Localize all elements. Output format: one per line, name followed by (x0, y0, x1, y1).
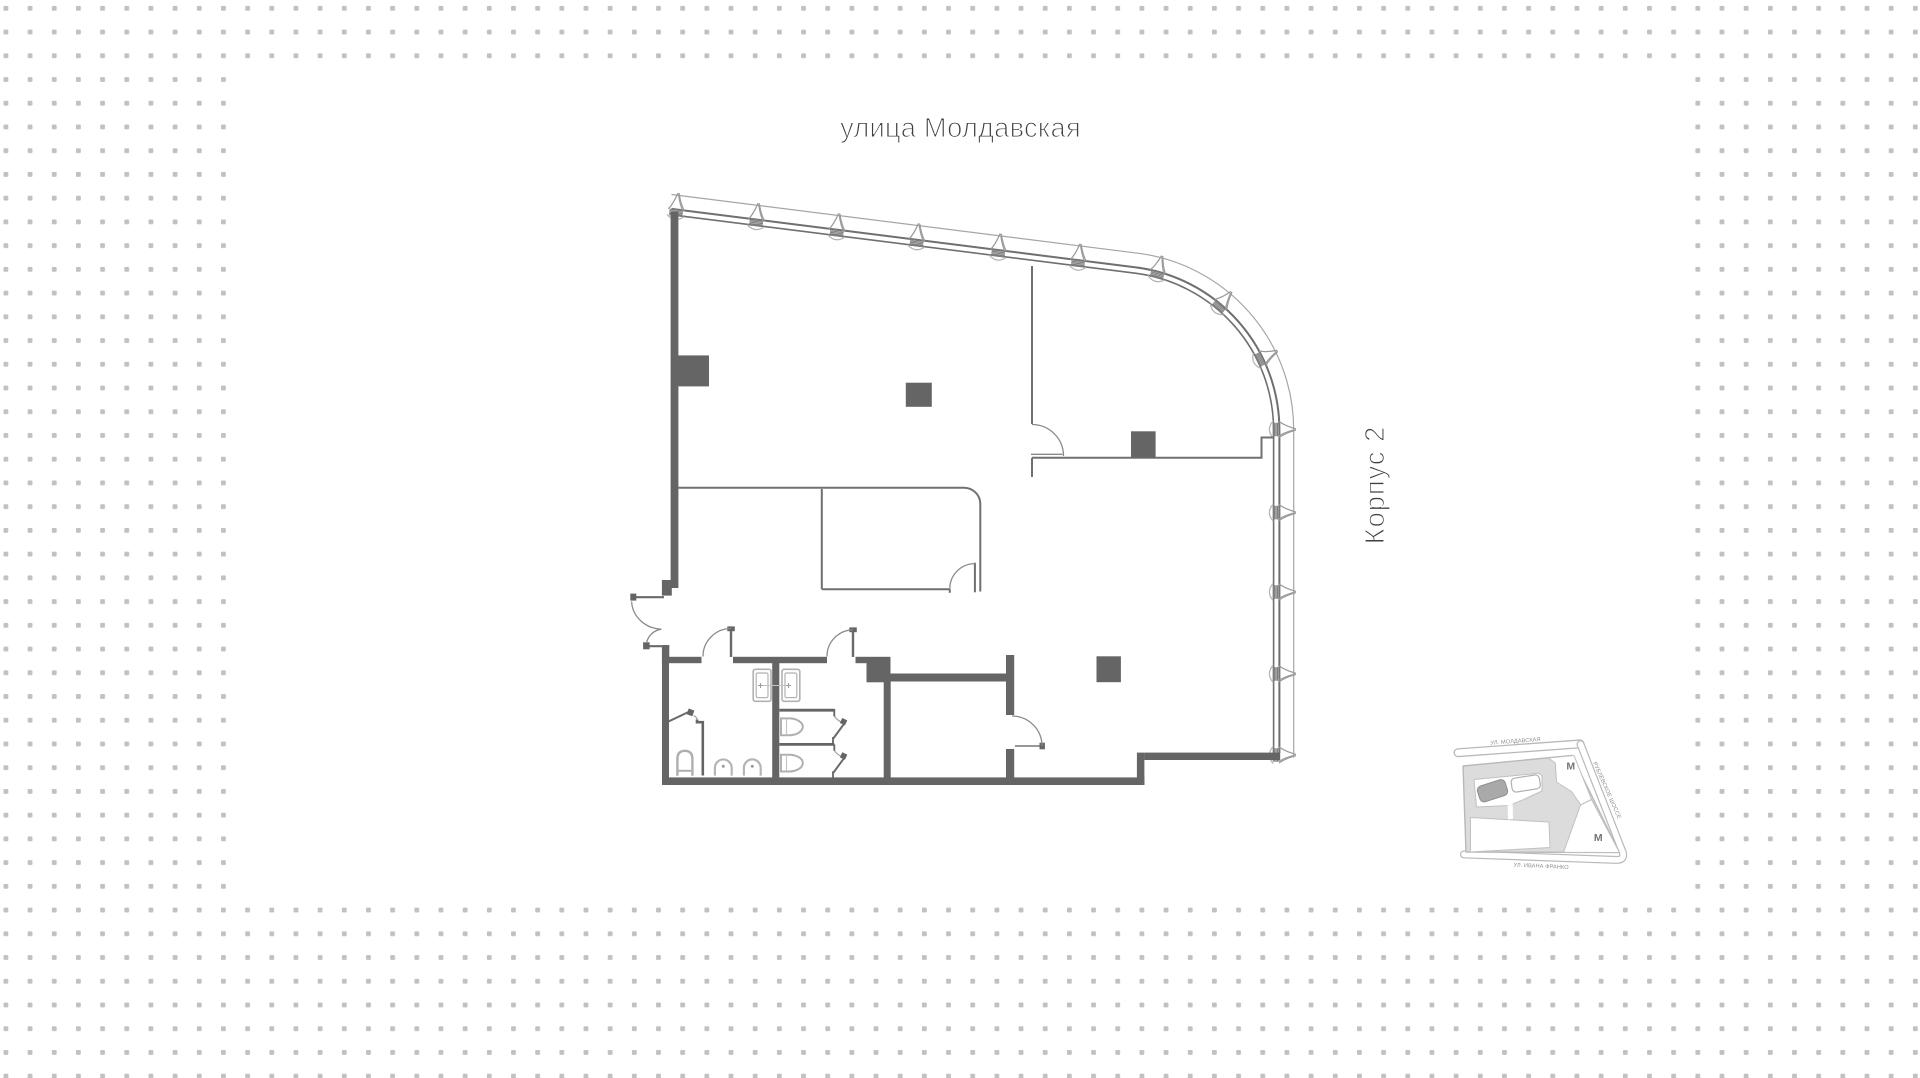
svg-text:М: М (1594, 832, 1603, 844)
svg-text:Корпус 2: Корпус 2 (1359, 426, 1390, 544)
svg-text:улица Молдавская: улица Молдавская (840, 112, 1081, 143)
svg-text:М: М (1566, 760, 1575, 772)
